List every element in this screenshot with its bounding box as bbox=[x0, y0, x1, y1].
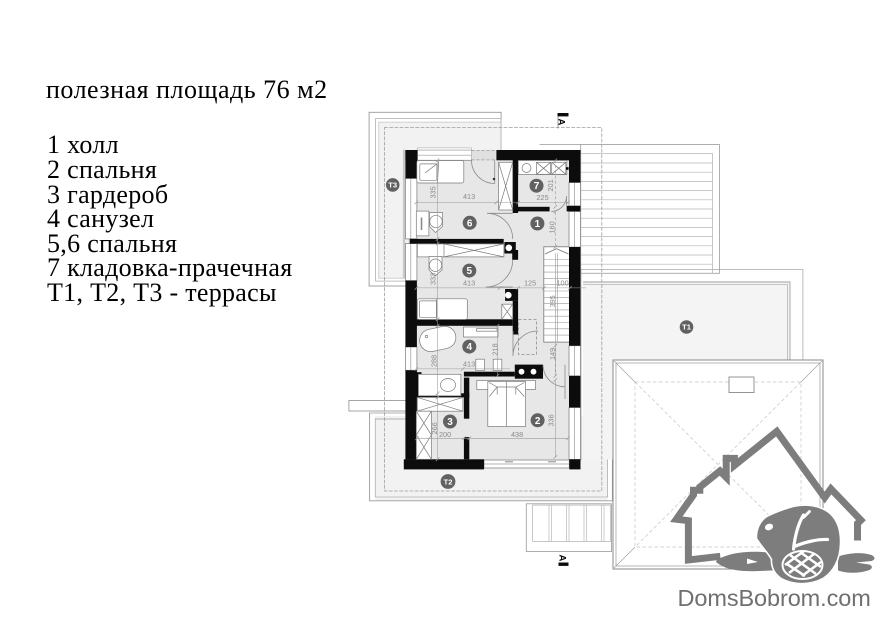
svg-text:DomsBobrom.com: DomsBobrom.com bbox=[678, 585, 871, 611]
svg-text:5: 5 bbox=[467, 266, 473, 277]
svg-text:2: 2 bbox=[535, 416, 541, 427]
svg-text:218: 218 bbox=[491, 343, 500, 355]
svg-text:333: 333 bbox=[428, 273, 437, 285]
svg-text:A: A bbox=[557, 555, 568, 562]
svg-text:413: 413 bbox=[463, 359, 475, 368]
svg-text:160: 160 bbox=[548, 221, 557, 233]
svg-text:335: 335 bbox=[428, 186, 437, 198]
svg-text:225: 225 bbox=[537, 193, 549, 202]
svg-text:438: 438 bbox=[511, 430, 523, 439]
svg-text:7: 7 bbox=[534, 181, 540, 192]
svg-text:288: 288 bbox=[430, 355, 439, 367]
svg-text:200: 200 bbox=[439, 430, 451, 439]
svg-text:395: 395 bbox=[548, 295, 557, 307]
svg-text:Т3: Т3 bbox=[388, 181, 397, 190]
svg-text:125: 125 bbox=[524, 278, 536, 287]
svg-text:266: 266 bbox=[430, 422, 439, 434]
svg-text:336: 336 bbox=[547, 414, 556, 426]
svg-text:413: 413 bbox=[463, 192, 475, 201]
svg-text:3: 3 bbox=[447, 417, 453, 428]
svg-text:100: 100 bbox=[557, 278, 569, 287]
svg-text:149: 149 bbox=[548, 348, 557, 360]
svg-text:6: 6 bbox=[467, 218, 473, 229]
svg-text:Т1: Т1 bbox=[682, 323, 692, 332]
svg-text:Т2: Т2 bbox=[444, 477, 453, 486]
svg-text:A: A bbox=[556, 119, 567, 126]
svg-text:201: 201 bbox=[546, 179, 555, 191]
svg-text:1: 1 bbox=[535, 219, 541, 230]
svg-text:4: 4 bbox=[467, 342, 473, 353]
svg-text:413: 413 bbox=[463, 278, 475, 287]
